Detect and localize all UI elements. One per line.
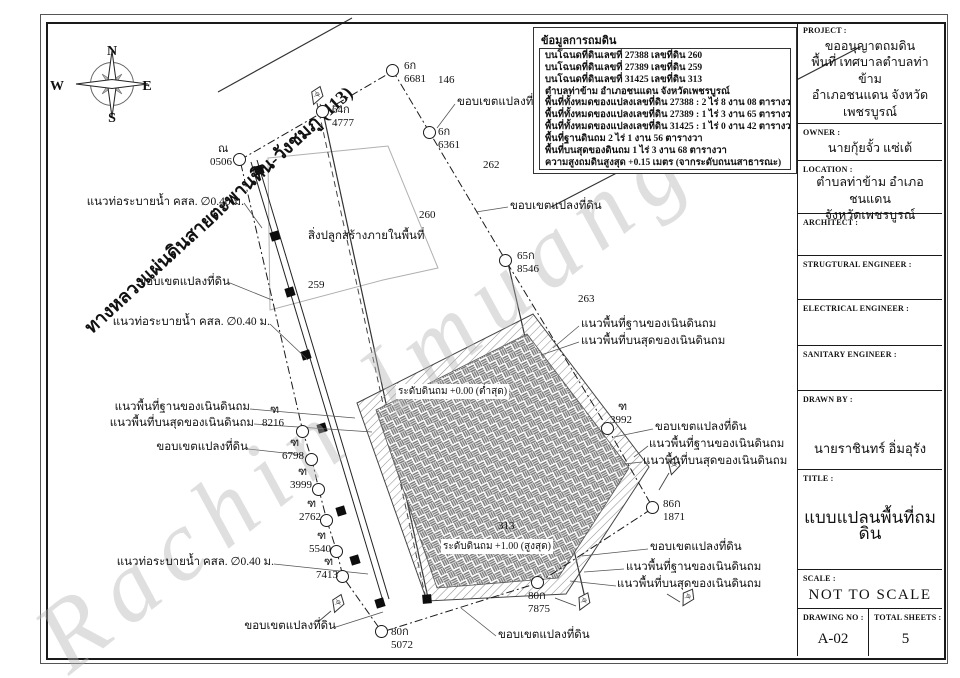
- info-box-line: บนโฉนดที่ดินเลขที่ 31425 เลขที่ดิน 313: [545, 75, 785, 87]
- info-box-line: พื้นที่บนสุดของดินถม 1 ไร่ 3 งาน 68 ตารา…: [545, 146, 785, 158]
- survey-point-label: 65ก8546: [517, 250, 539, 275]
- project-label: PROJECT :: [798, 22, 942, 35]
- survey-point-label: ณ0506: [210, 143, 232, 168]
- annotation-label: แนวพื้นที่ฐานของเนินดินถม: [649, 438, 784, 451]
- survey-point-marker: [646, 501, 659, 514]
- survey-point-marker: [233, 153, 246, 166]
- annotation-label: แนวพื้นที่ฐานของเนินดินถม: [115, 401, 250, 414]
- annotation-label: แนวพื้นที่บนสุดของเนินดินถม: [643, 455, 787, 468]
- title-block-sanitary-engineer: SANITARY ENGINEER :: [798, 346, 942, 391]
- electrical-engineer-value: [798, 313, 942, 345]
- survey-point-label: ฑ7413: [316, 556, 338, 581]
- title-block-drawing-no: DRAWING NO : A-02: [798, 609, 869, 656]
- owner-value: นายกุ้ยจั้ว แซ่เต้: [798, 137, 942, 160]
- survey-point-marker: [320, 514, 333, 527]
- architect-label: ARCHITECT :: [798, 214, 942, 227]
- info-box-line: พื้นที่ทั้งหมดของแปลงเลขที่ดิน 27389 : 1…: [545, 110, 785, 122]
- survey-point-marker: [316, 105, 329, 118]
- annotation-label: แนวท่อระบายน้ำ คสล. ∅0.40 ม.: [117, 556, 274, 569]
- survey-point-label: 80ก7875: [528, 590, 550, 615]
- structural-engineer-value: [798, 269, 942, 299]
- annotation-label: ขอบเขตแปลงที่ดิน: [650, 541, 742, 554]
- annotation-label: ขอบเขตแปลงที่ดิน: [498, 629, 590, 642]
- project-line-2: พื้นที่ เทศบาลตำบลท่าข้าม: [800, 54, 940, 87]
- info-box-title: ข้อมูลการถมดิน: [541, 31, 616, 49]
- survey-point-label: 6ก6361: [438, 126, 460, 151]
- location-line-1: ตำบลท่าข้าม อำเภอชนแดน: [800, 174, 940, 207]
- drawing-title-value: แบบแปลนพื้นที่ถมดิน: [798, 483, 942, 569]
- project-line-1: ขออนุญาตถมดิน: [825, 38, 915, 55]
- survey-point-marker: [305, 453, 318, 466]
- survey-point-label: 64ก4777: [332, 104, 354, 129]
- title-block-title: TITLE : แบบแปลนพื้นที่ถมดิน: [798, 470, 942, 570]
- annotation-label: แนวพื้นที่ฐานของเนินดินถม: [626, 561, 761, 574]
- fill-level-label: ระดับดินถม +0.00 (ต่ำสุด): [396, 384, 509, 399]
- parcel-number-label: 313: [498, 520, 515, 532]
- drawing-sheet: N S W E Rachin Imuang ทางหลวงแผ่นดินสายต…: [0, 0, 960, 678]
- parcel-number-label: 259: [308, 279, 325, 291]
- survey-point-label: 80ก5072: [391, 626, 413, 651]
- survey-point-marker: [531, 576, 544, 589]
- annotation-label: ขอบเขตแปลงที่ดิน: [510, 200, 602, 213]
- title-block-project: PROJECT : ขออนุญาตถมดิน พื้นที่ เทศบาลตำ…: [798, 22, 942, 124]
- sanitary-engineer-label: SANITARY ENGINEER :: [798, 346, 942, 359]
- annotation-label: ขอบเขตแปลงที่ดิน: [655, 421, 747, 434]
- title-block-architect: ARCHITECT :: [798, 214, 942, 256]
- annotation-label: แนวพื้นที่ฐานของเนินดินถม: [581, 318, 716, 331]
- annotation-label: ขอบเขตแปลงที่ดิน: [138, 276, 230, 289]
- info-box-line: บนโฉนดที่ดินเลขที่ 27388 เลขที่ดิน 260: [545, 51, 785, 63]
- survey-point-label: ฑ6798: [282, 437, 304, 462]
- survey-point-marker: [375, 625, 388, 638]
- survey-point-marker: [499, 254, 512, 267]
- title-block-location: LOCATION : ตำบลท่าข้าม อำเภอชนแดน จังหวั…: [798, 161, 942, 214]
- annotation-label: ขอบเขตแปลงที่ดิน: [156, 441, 248, 454]
- drawing-no-label: DRAWING NO :: [798, 609, 868, 622]
- survey-point-label: ฑ8216: [262, 404, 284, 429]
- survey-point-marker: [423, 126, 436, 139]
- annotation-label: แนวท่อระบายน้ำ คสล. ∅0.40 ม.: [113, 316, 270, 329]
- parcel-number-label: 262: [483, 159, 500, 171]
- annotation-label: แนวพื้นที่บนสุดของเนินดินถม: [110, 417, 254, 430]
- annotation-label: แนวพื้นที่บนสุดของเนินดินถม: [581, 335, 725, 348]
- sanitary-engineer-value: [798, 359, 942, 390]
- survey-point-marker: [386, 64, 399, 77]
- title-block-bottom-row: DRAWING NO : A-02 TOTAL SHEETS : 5: [798, 609, 942, 656]
- drawn-by-value: นายราชินทร์ อิ่มอุรัง: [798, 404, 942, 469]
- total-sheets-value: 5: [869, 622, 942, 656]
- info-box-line: พื้นที่ฐานดินถม 2 ไร่ 1 งาน 56 ตารางวา: [545, 134, 785, 146]
- title-block-structural-engineer: STRUGTURAL ENGINEER :: [798, 256, 942, 300]
- title-block-scale: SCALE : NOT TO SCALE: [798, 570, 942, 609]
- info-box-body: บนโฉนดที่ดินเลขที่ 27388 เลขที่ดิน 260บน…: [539, 48, 791, 170]
- fill-data-info-box: ข้อมูลการถมดิน บนโฉนดที่ดินเลขที่ 27388 …: [533, 27, 797, 174]
- scale-value: NOT TO SCALE: [798, 583, 942, 608]
- survey-point-label: 6ก6681: [404, 60, 426, 85]
- survey-point-label: 86ก1871: [663, 498, 685, 523]
- title-block-drawn-by: DRAWN BY : นายราชินทร์ อิ่มอุรัง: [798, 391, 942, 470]
- survey-point-marker: [296, 425, 309, 438]
- parcel-number-label: 263: [578, 293, 595, 305]
- architect-value: [798, 227, 942, 255]
- structural-engineer-label: STRUGTURAL ENGINEER :: [798, 256, 942, 269]
- annotation-label: แนวพื้นที่บนสุดของเนินดินถม: [617, 578, 761, 591]
- survey-point-label: ฑ2762: [299, 498, 321, 523]
- survey-point-label: ฑ3992: [610, 401, 632, 426]
- scale-label: SCALE :: [798, 570, 942, 583]
- info-box-line: ความสูงถมดินสูงสุด +0.15 เมตร (จากระดับถ…: [545, 158, 785, 170]
- annotation-label: ขอบเขตแปลงที่ดิน: [244, 620, 336, 633]
- info-box-line: บนโฉนดที่ดินเลขที่ 27389 เลขที่ดิน 259: [545, 63, 785, 75]
- title-block-electrical-engineer: ELECTRICAL ENGINEER :: [798, 300, 942, 346]
- info-box-line: พื้นที่ทั้งหมดของแปลงเลขที่ดิน 27388 : 2…: [545, 98, 785, 110]
- drawing-no-value: A-02: [798, 622, 868, 656]
- title-block-total-sheets: TOTAL SHEETS : 5: [869, 609, 942, 656]
- survey-point-label: ฑ5540: [309, 530, 331, 555]
- title-block-owner: OWNER : นายกุ้ยจั้ว แซ่เต้: [798, 124, 942, 161]
- annotation-label: สิ่งปลูกสร้างภายในพื้นที่: [308, 230, 425, 243]
- project-line-3: อำเภอชนแดน จังหวัดเพชรบูรณ์: [800, 87, 940, 120]
- survey-point-marker: [312, 483, 325, 496]
- electrical-engineer-label: ELECTRICAL ENGINEER :: [798, 300, 942, 313]
- survey-point-marker: [330, 545, 343, 558]
- parcel-number-label: 146: [438, 74, 455, 86]
- parcel-number-label: 260: [419, 209, 436, 221]
- location-label: LOCATION :: [798, 161, 942, 174]
- survey-point-label: ฑ3999: [290, 466, 312, 491]
- fill-level-label: ระดับดินถม +1.00 (สูงสุด): [441, 539, 553, 554]
- info-box-line: ตำบลท่าข้าม อำเภอชนแดน จังหวัดเพชรบูรณ์: [545, 87, 785, 99]
- title-block: PROJECT : ขออนุญาตถมดิน พื้นที่ เทศบาลตำ…: [797, 22, 942, 656]
- total-sheets-label: TOTAL SHEETS :: [869, 609, 942, 622]
- annotation-label: แนวท่อระบายน้ำ คสล. ∅0.40 ม.: [87, 196, 244, 209]
- title-label: TITLE :: [798, 470, 942, 483]
- drawn-by-label: DRAWN BY :: [798, 391, 942, 404]
- info-box-line: พื้นที่ทั้งหมดของแปลงเลขที่ดิน 31425 : 1…: [545, 122, 785, 134]
- owner-label: OWNER :: [798, 124, 942, 137]
